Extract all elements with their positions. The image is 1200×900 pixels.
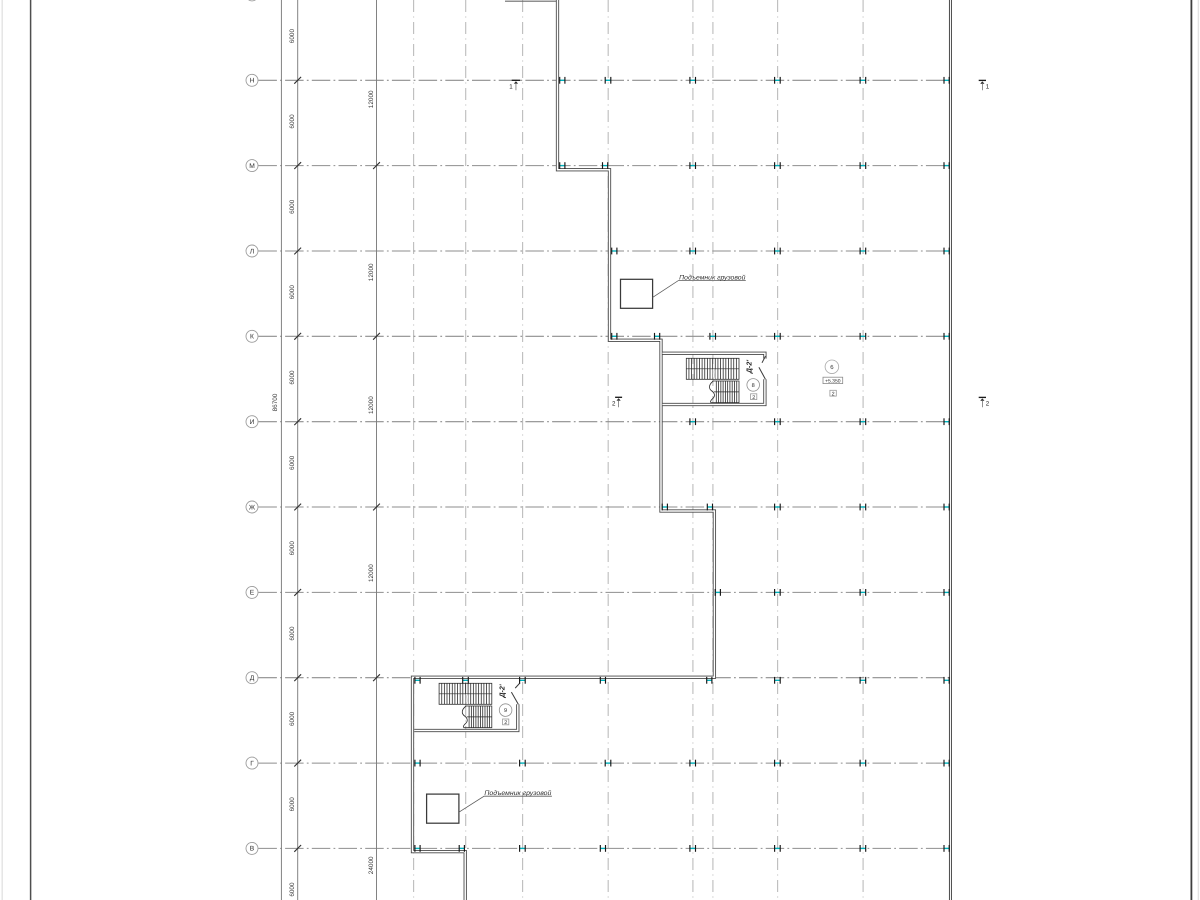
svg-text:86700: 86700 [272,393,279,411]
svg-text:К: К [250,334,254,341]
svg-text:6000: 6000 [289,541,296,556]
svg-text:6000: 6000 [289,626,296,641]
svg-text:Д-2': Д-2' [498,684,507,699]
svg-text:2: 2 [832,391,835,397]
svg-text:12000: 12000 [368,90,375,108]
svg-text:Н: Н [250,78,255,85]
svg-text:2: 2 [504,720,507,726]
svg-text:2: 2 [612,401,616,408]
svg-text:6000: 6000 [289,797,296,812]
svg-text:1: 1 [509,84,513,91]
svg-text:Л: Л [250,248,254,255]
svg-text:8: 8 [752,383,755,389]
svg-text:И: И [250,419,255,426]
svg-text:12000: 12000 [368,396,375,414]
svg-text:+5.350: +5.350 [825,378,841,384]
svg-text:М: М [249,163,255,170]
svg-text:6000: 6000 [289,370,296,385]
svg-text:6000: 6000 [289,285,296,300]
svg-text:Д-2': Д-2' [745,360,754,375]
svg-text:Подъемник грузовой: Подъемник грузовой [679,274,746,281]
svg-text:Д: Д [250,675,255,682]
svg-text:6000: 6000 [289,882,296,897]
svg-text:6000: 6000 [289,29,296,44]
svg-text:6000: 6000 [289,455,296,470]
svg-text:2: 2 [752,395,755,401]
svg-text:6000: 6000 [289,711,296,726]
svg-text:Е: Е [250,590,255,597]
svg-text:Подъемник грузовой: Подъемник грузовой [484,790,551,797]
svg-text:Г: Г [250,760,254,767]
svg-text:24000: 24000 [368,856,375,874]
svg-text:Ж: Ж [249,504,256,511]
svg-text:6000: 6000 [289,114,296,129]
svg-text:6000: 6000 [289,199,296,214]
svg-text:1: 1 [986,84,990,91]
svg-text:В: В [250,846,255,853]
svg-text:12000: 12000 [368,263,375,281]
svg-text:2: 2 [986,401,990,408]
svg-text:12000: 12000 [368,564,375,582]
svg-text:9: 9 [504,708,507,714]
